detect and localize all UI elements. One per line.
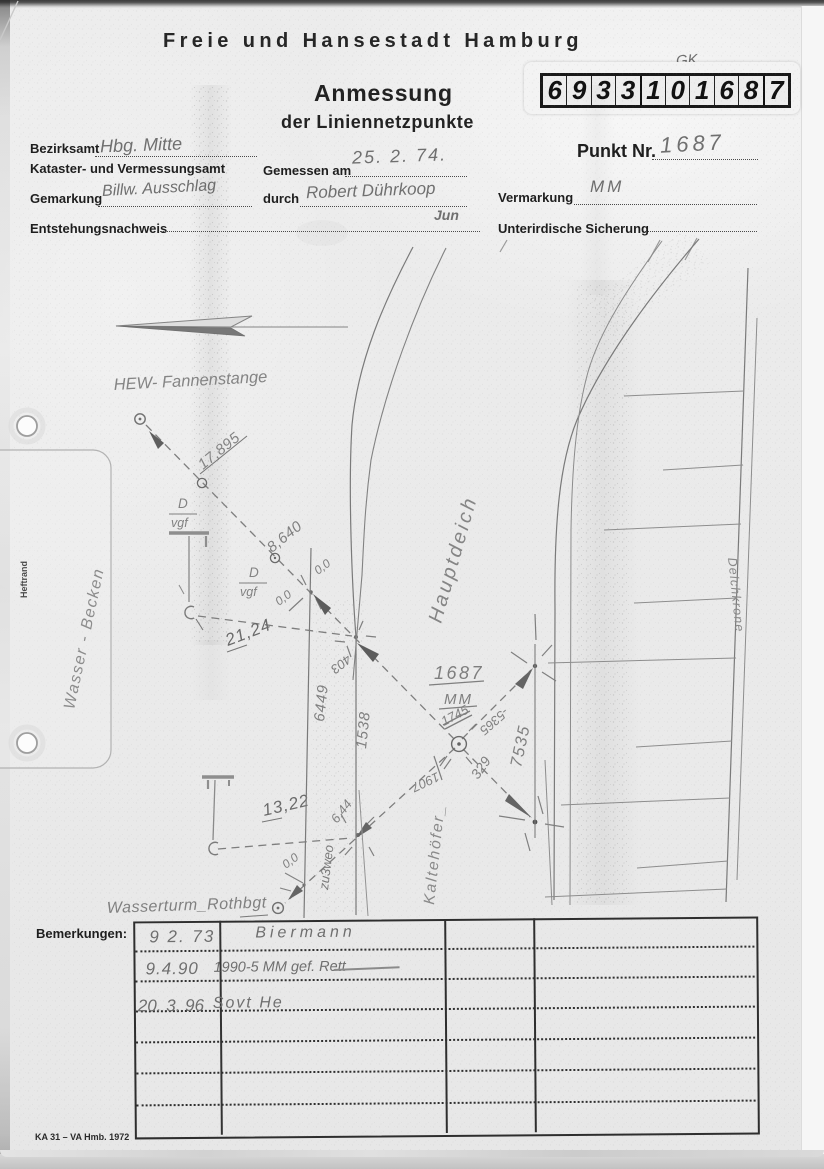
svg-text:vgf: vgf (240, 585, 258, 599)
svg-text:D: D (178, 496, 188, 511)
svg-text:Heftrand: Heftrand (19, 561, 29, 598)
svg-text:1687: 1687 (434, 663, 484, 683)
svg-text:vgf: vgf (171, 516, 189, 530)
svg-text:D: D (249, 565, 259, 580)
